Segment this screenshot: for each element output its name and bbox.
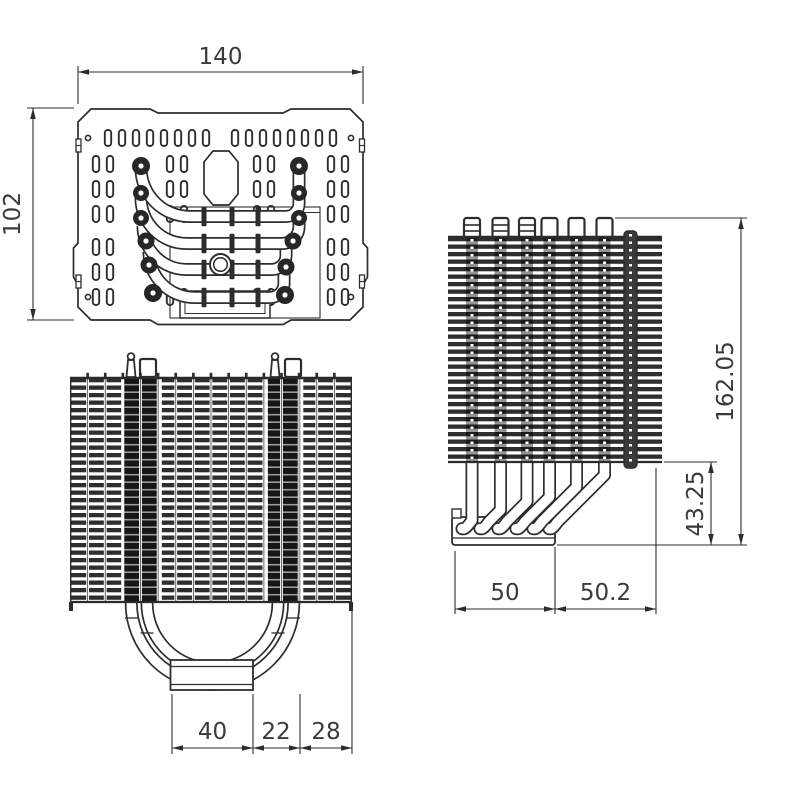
- pipe-joint-center: [138, 215, 143, 220]
- dim-label-depth-front: 50: [490, 580, 519, 606]
- dim-arrow: [738, 218, 744, 229]
- pipe-joint-center: [138, 190, 143, 195]
- vent-slot: [93, 239, 99, 255]
- dim-arrow: [645, 606, 656, 612]
- vent-slot: [316, 130, 322, 146]
- cap-left: [140, 359, 156, 377]
- vent-slot: [342, 156, 348, 172]
- dim-label-top-height: 102: [0, 192, 26, 236]
- engineering-drawing: 140 102 40 22 28 162.05 43.25 50 50.2: [0, 0, 800, 800]
- dim-label-pipe-offset: 22: [261, 719, 290, 745]
- pipe-joint-center: [296, 190, 301, 195]
- dim-arrow: [30, 108, 36, 119]
- vent-slot: [161, 130, 167, 146]
- dim-arrow: [708, 462, 714, 473]
- vent-slot: [246, 130, 252, 146]
- dim-arrow: [242, 745, 253, 751]
- vent-slot: [330, 130, 336, 146]
- dim-label-depth-rear: 50.2: [580, 580, 631, 606]
- vent-slot: [254, 181, 260, 197]
- vent-slot: [268, 156, 274, 172]
- vent-slot: [342, 264, 348, 280]
- top-view: [74, 109, 368, 325]
- dim-label-edge-offset: 28: [311, 719, 340, 745]
- corner-hole: [348, 294, 353, 299]
- vent-slot: [181, 156, 187, 172]
- dim-arrow: [172, 745, 183, 751]
- dim-arrow: [352, 69, 363, 75]
- vent-slot: [107, 264, 113, 280]
- vent-slot: [342, 239, 348, 255]
- pipe-tip-right: [271, 353, 302, 377]
- stack-foot-left: [69, 602, 73, 611]
- vent-slot: [107, 289, 113, 305]
- vent-slot: [107, 239, 113, 255]
- front-view: [69, 353, 353, 690]
- dim-arrow: [738, 534, 744, 545]
- cpu-cutout: [204, 151, 238, 205]
- dim-label-top-width: 140: [199, 44, 243, 70]
- vent-slot: [268, 181, 274, 197]
- pipe-joint-center: [282, 292, 287, 297]
- pipe-clamp: [202, 207, 207, 227]
- vent-slot: [175, 130, 181, 146]
- pipe-joint-center: [150, 290, 155, 295]
- pipe-clamp: [256, 234, 261, 254]
- pipe-tips-side: [464, 218, 613, 238]
- vent-slot: [167, 181, 173, 197]
- pipe-tip-side: [464, 218, 480, 238]
- vent-slot: [288, 130, 294, 146]
- vent-slot: [328, 181, 334, 197]
- vent-slot: [203, 130, 209, 146]
- fin-stitches: [86, 373, 335, 601]
- vent-slot: [260, 130, 266, 146]
- dim-arrow: [455, 606, 466, 612]
- vent-slot: [342, 206, 348, 222]
- corner-hole: [85, 294, 90, 299]
- vent-slot: [107, 181, 113, 197]
- vent-slot: [93, 156, 99, 172]
- pipe-clamp: [256, 260, 261, 280]
- pipe-joint-center: [283, 264, 288, 269]
- vent-slot: [302, 130, 308, 146]
- vent-slot: [181, 181, 187, 197]
- vent-slot: [93, 264, 99, 280]
- pipe-tip-side: [542, 218, 558, 238]
- vent-slot: [328, 289, 334, 305]
- vent-slot: [254, 156, 260, 172]
- vent-slot: [328, 239, 334, 255]
- vent-slot: [328, 156, 334, 172]
- vent-slot: [328, 264, 334, 280]
- pipe-tip-side: [519, 218, 535, 238]
- vent-slot: [93, 289, 99, 305]
- dim-arrow: [708, 534, 714, 545]
- dim-arrow: [544, 606, 555, 612]
- dim-label-bend-height: 43.25: [683, 471, 709, 537]
- vent-slot: [93, 206, 99, 222]
- dim-arrow: [341, 745, 352, 751]
- pipe-clamp: [230, 207, 235, 227]
- pipe-clamp: [256, 207, 261, 227]
- dim-arrow: [289, 745, 300, 751]
- vent-slot: [274, 130, 280, 146]
- pipe-clamp: [202, 234, 207, 254]
- vent-slot: [133, 130, 139, 146]
- pipe-joint-center: [138, 163, 143, 168]
- dim-label-base-width: 40: [198, 719, 227, 745]
- dim-arrow: [78, 69, 89, 75]
- vent-slot: [342, 289, 348, 305]
- pipe-tip-side: [493, 218, 509, 238]
- corner-hole: [85, 135, 90, 140]
- vent-slot: [189, 130, 195, 146]
- pipe-tip-side: [569, 218, 585, 238]
- vent-slot: [119, 130, 125, 146]
- dim-arrow: [30, 309, 36, 320]
- u-heatpipe-outline: [147, 596, 278, 668]
- pipe-tip-side: [597, 218, 613, 238]
- pipe-column-right: [268, 378, 301, 602]
- pipe-joint-center: [290, 238, 295, 243]
- rear-column: [624, 231, 637, 468]
- pipe-joint-center: [296, 163, 301, 168]
- vent-slot: [107, 206, 113, 222]
- vent-slot: [232, 130, 238, 146]
- base-step-side: [452, 509, 461, 518]
- corner-hole: [348, 135, 353, 140]
- vent-slot: [342, 181, 348, 197]
- side-view: [448, 218, 662, 545]
- vent-slot: [107, 156, 113, 172]
- pipe-joint-center: [146, 262, 151, 267]
- pipe-clamp: [202, 288, 207, 308]
- vent-slot: [147, 130, 153, 146]
- pipe-clamp: [202, 260, 207, 280]
- dim-arrow: [253, 745, 264, 751]
- vent-slot: [93, 181, 99, 197]
- dim-arrow: [300, 745, 311, 751]
- pipe-clamp: [230, 234, 235, 254]
- pipe-clamp: [230, 288, 235, 308]
- pipe-clamp: [256, 288, 261, 308]
- pipe-joint-center: [143, 238, 148, 243]
- center-screw-inner: [214, 258, 228, 272]
- page: 140 102 40 22 28 162.05 43.25 50 50.2: [0, 0, 800, 800]
- dim-arrow: [555, 606, 566, 612]
- pipe-joint-center: [296, 215, 301, 220]
- vent-slot: [328, 206, 334, 222]
- dim-label-total-height: 162.05: [713, 341, 739, 421]
- vent-slot: [167, 156, 173, 172]
- vent-slot: [105, 130, 111, 146]
- base-block-front: [171, 660, 254, 690]
